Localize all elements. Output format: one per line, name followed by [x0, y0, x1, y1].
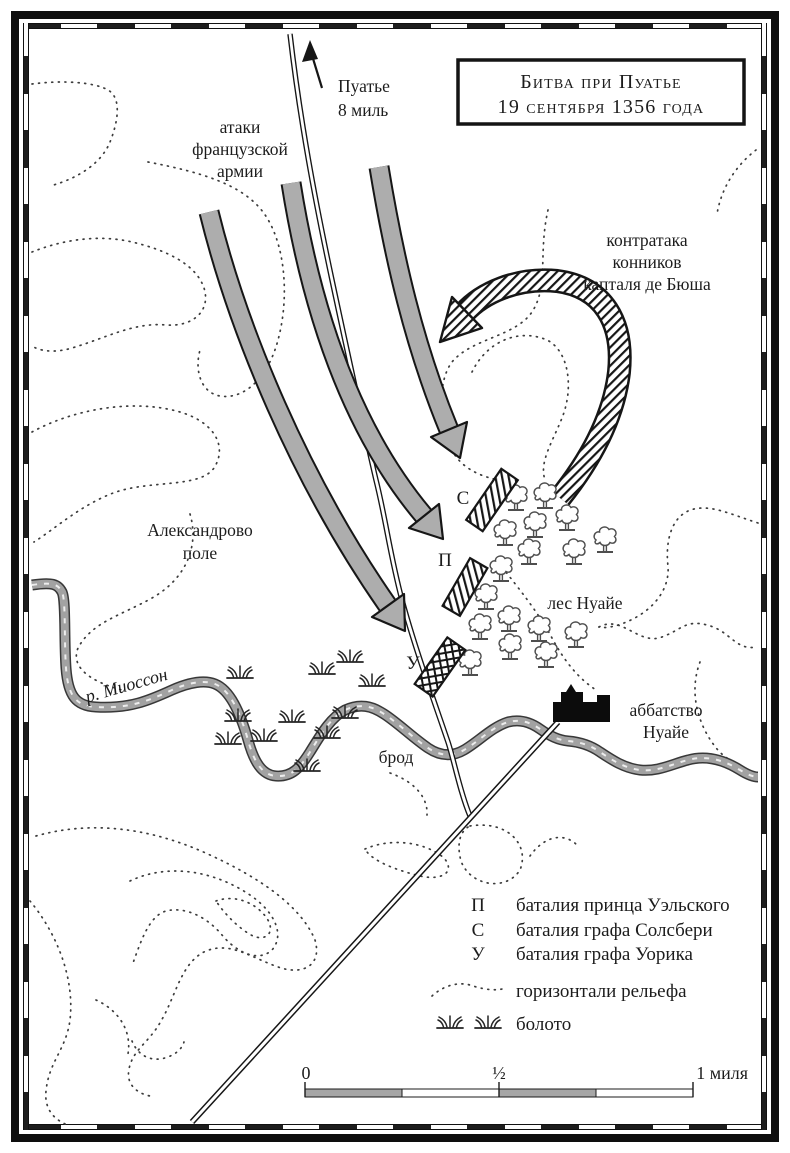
legend-label-salisbury: баталия графа Солсбери — [516, 920, 713, 941]
north-road-arrow-icon — [302, 40, 322, 88]
legend-symbol-salisbury: С — [472, 920, 485, 941]
counterattack-label-1: контратака — [606, 230, 688, 250]
legend-label-contours: горизонтали рельефа — [516, 981, 687, 1002]
legend-marsh-sample — [437, 1016, 501, 1028]
road-past-abbey — [192, 722, 558, 1122]
french-attacks-label-3: армии — [217, 161, 263, 181]
counterattack-label-2: конников — [612, 252, 681, 272]
legend-label-warwick: баталия графа Уорика — [516, 944, 694, 965]
french-attacks-label-2: французской — [192, 139, 288, 159]
legend-label-marsh: болото — [516, 1014, 571, 1035]
legend-symbol-prince: П — [471, 895, 485, 916]
poitiers-direction-label-1: Пуатье — [338, 76, 390, 96]
battle-map: Пуатье 8 миль атаки французской армии ко… — [0, 0, 790, 1153]
ford-label: брод — [379, 747, 414, 767]
legend-contour-sample — [432, 984, 506, 996]
unit-letter-salisbury: С — [457, 488, 470, 509]
abbey-building-icon — [553, 684, 610, 722]
noailles-wood-label: лес Нуайе — [547, 593, 622, 613]
alexander-field-label-1: Александрово — [147, 520, 253, 540]
abbey-label-1: аббатство — [629, 700, 702, 720]
alexander-field-label-2: поле — [183, 543, 218, 563]
counterattack-arrow — [440, 280, 620, 498]
scale-label-zero: 0 — [302, 1063, 311, 1083]
scale-label-half: ½ — [492, 1063, 506, 1083]
legend: П баталия принца Уэльского С баталия гра… — [432, 895, 730, 1035]
map-title-line-2: 19 сентября 1356 года — [498, 96, 705, 118]
unit-letter-prince: П — [438, 550, 452, 571]
legend-symbol-warwick: У — [471, 944, 485, 965]
battle-map-page: Пуатье 8 миль атаки французской армии ко… — [0, 0, 790, 1153]
abbey-label-2: Нуайе — [643, 722, 689, 742]
title-box: Битва при Пуатье 19 сентября 1356 года — [458, 60, 744, 124]
map-title-line-1: Битва при Пуатье — [520, 71, 682, 93]
counterattack-label-3: капталя де Бюша — [583, 274, 711, 294]
poitiers-direction-label-2: 8 миль — [338, 100, 388, 120]
scale-bar: 0 ½ 1 миля — [302, 1063, 749, 1097]
scale-label-mile: 1 миля — [696, 1063, 748, 1083]
legend-label-prince: баталия принца Уэльского — [516, 895, 730, 916]
unit-letter-warwick: У — [406, 653, 420, 674]
french-attacks-label-1: атаки — [220, 117, 261, 137]
